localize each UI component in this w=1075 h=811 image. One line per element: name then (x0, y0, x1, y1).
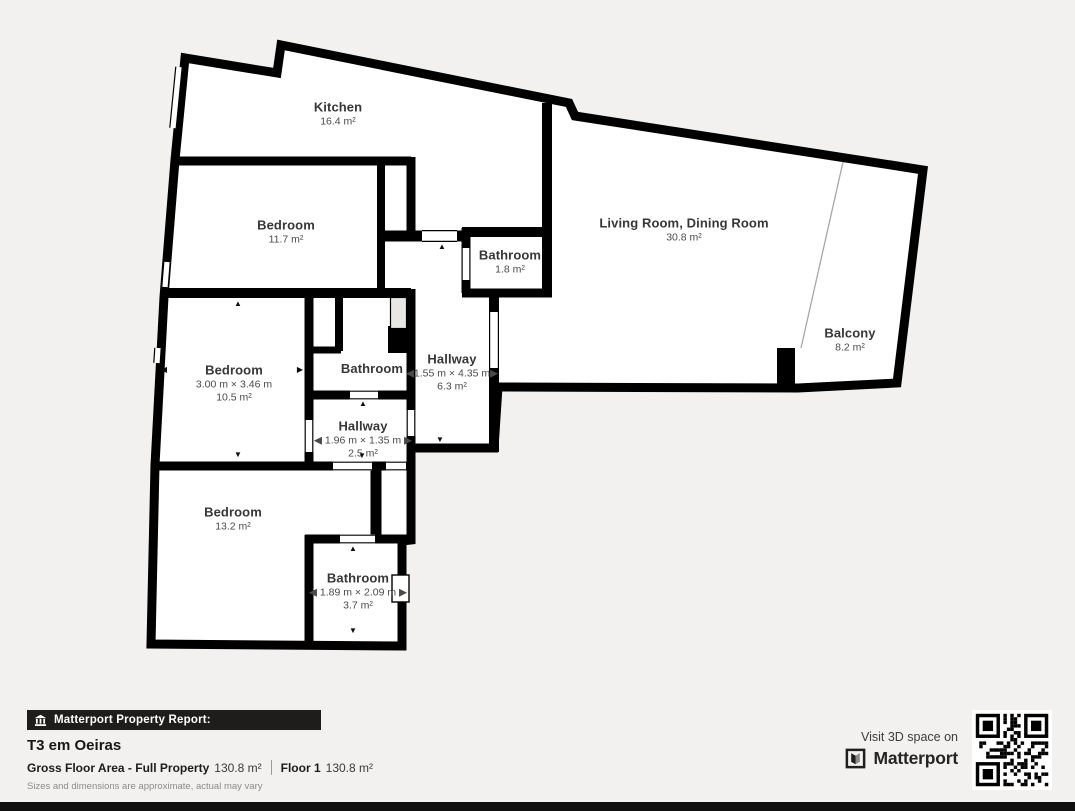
outer-walls (151, 45, 923, 646)
gfa-value: 130.8 m² (214, 761, 261, 775)
metrics-divider (271, 760, 272, 775)
service-shaft (391, 298, 407, 329)
gfa-label: Gross Floor Area - Full Property (27, 761, 209, 775)
area-metrics: Gross Floor Area - Full Property 130.8 m… (27, 760, 373, 775)
footer-bar (0, 802, 1075, 811)
matterport-m-icon (844, 747, 867, 770)
floor-label: Floor 1 (281, 761, 321, 775)
disclaimer-text: Sizes and dimensions are approximate, ac… (27, 781, 263, 792)
property-title: T3 em Oeiras (27, 737, 121, 754)
matterport-wordmark: Matterport (873, 748, 958, 769)
building-icon (34, 714, 47, 727)
report-badge-label: Matterport Property Report: (54, 714, 211, 726)
floor-plan (0, 0, 1075, 811)
report-badge: Matterport Property Report: (27, 710, 321, 730)
property-report-page: Kitchen 16.4 m² Bedroom 11.7 m² Living R… (0, 0, 1075, 811)
visit-3d-text: Visit 3D space on (780, 730, 958, 744)
floor-value: 130.8 m² (326, 761, 373, 775)
matterport-logo: Matterport (780, 747, 958, 770)
qr-code (972, 710, 1052, 790)
